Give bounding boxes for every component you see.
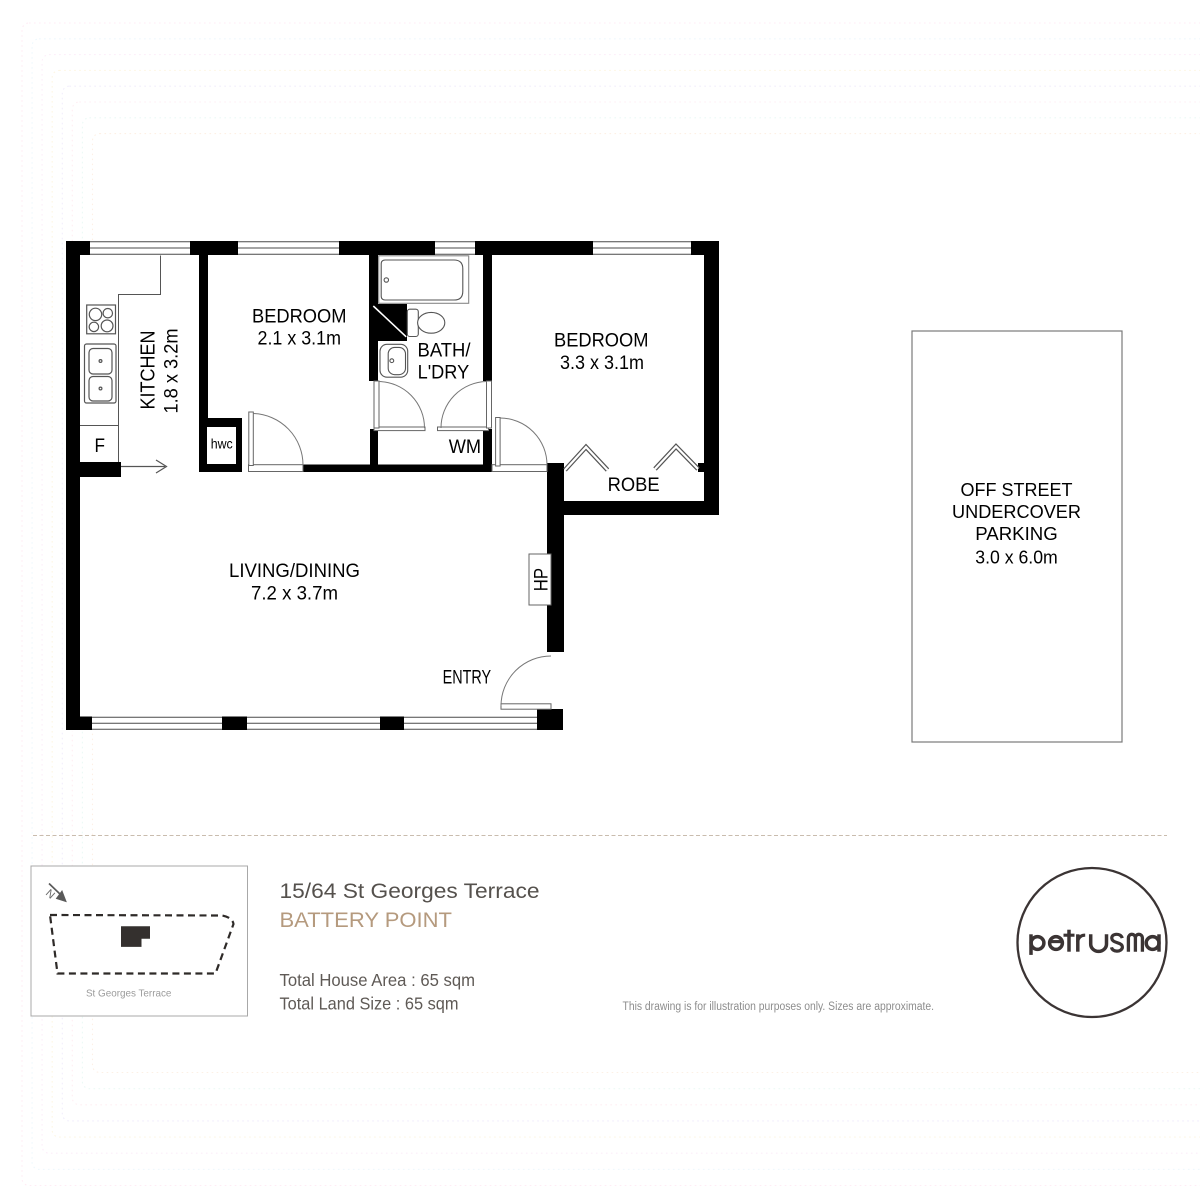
svg-text:3.3 x 3.1m: 3.3 x 3.1m [560, 352, 644, 374]
svg-text:KITCHEN: KITCHEN [138, 331, 160, 410]
svg-text:BATTERY POINT: BATTERY POINT [280, 908, 453, 932]
svg-text:UNDERCOVER: UNDERCOVER [952, 501, 1081, 522]
svg-text:HP: HP [531, 568, 553, 591]
svg-text:hwc: hwc [211, 436, 233, 452]
svg-text:BEDROOM: BEDROOM [554, 330, 649, 352]
svg-text:BEDROOM: BEDROOM [252, 306, 347, 328]
svg-text:Total Land Size : 65 sqm: Total Land Size : 65 sqm [280, 994, 459, 1014]
svg-text:L'DRY: L'DRY [418, 362, 470, 384]
svg-text:ROBE: ROBE [608, 474, 660, 496]
svg-text:F: F [94, 435, 105, 457]
svg-text:WM: WM [449, 436, 481, 458]
svg-text:BATH/: BATH/ [418, 340, 472, 362]
svg-text:PARKING: PARKING [975, 523, 1058, 544]
svg-text:2.1 x 3.1m: 2.1 x 3.1m [258, 328, 342, 350]
svg-text:St Georges Terrace: St Georges Terrace [86, 988, 172, 1000]
svg-text:Total House Area : 65 sqm: Total House Area : 65 sqm [280, 970, 476, 990]
svg-text:This drawing is for illustrati: This drawing is for illustration purpose… [623, 1001, 935, 1013]
svg-text:ENTRY: ENTRY [443, 667, 492, 689]
svg-text:7.2 x 3.7m: 7.2 x 3.7m [251, 583, 338, 605]
svg-text:LIVING/DINING: LIVING/DINING [229, 560, 360, 582]
svg-text:15/64 St Georges Terrace: 15/64 St Georges Terrace [280, 880, 540, 903]
svg-text:3.0 x 6.0m: 3.0 x 6.0m [975, 547, 1058, 568]
svg-text:OFF STREET: OFF STREET [961, 479, 1073, 500]
svg-text:1.8 x 3.2m: 1.8 x 3.2m [161, 329, 183, 414]
